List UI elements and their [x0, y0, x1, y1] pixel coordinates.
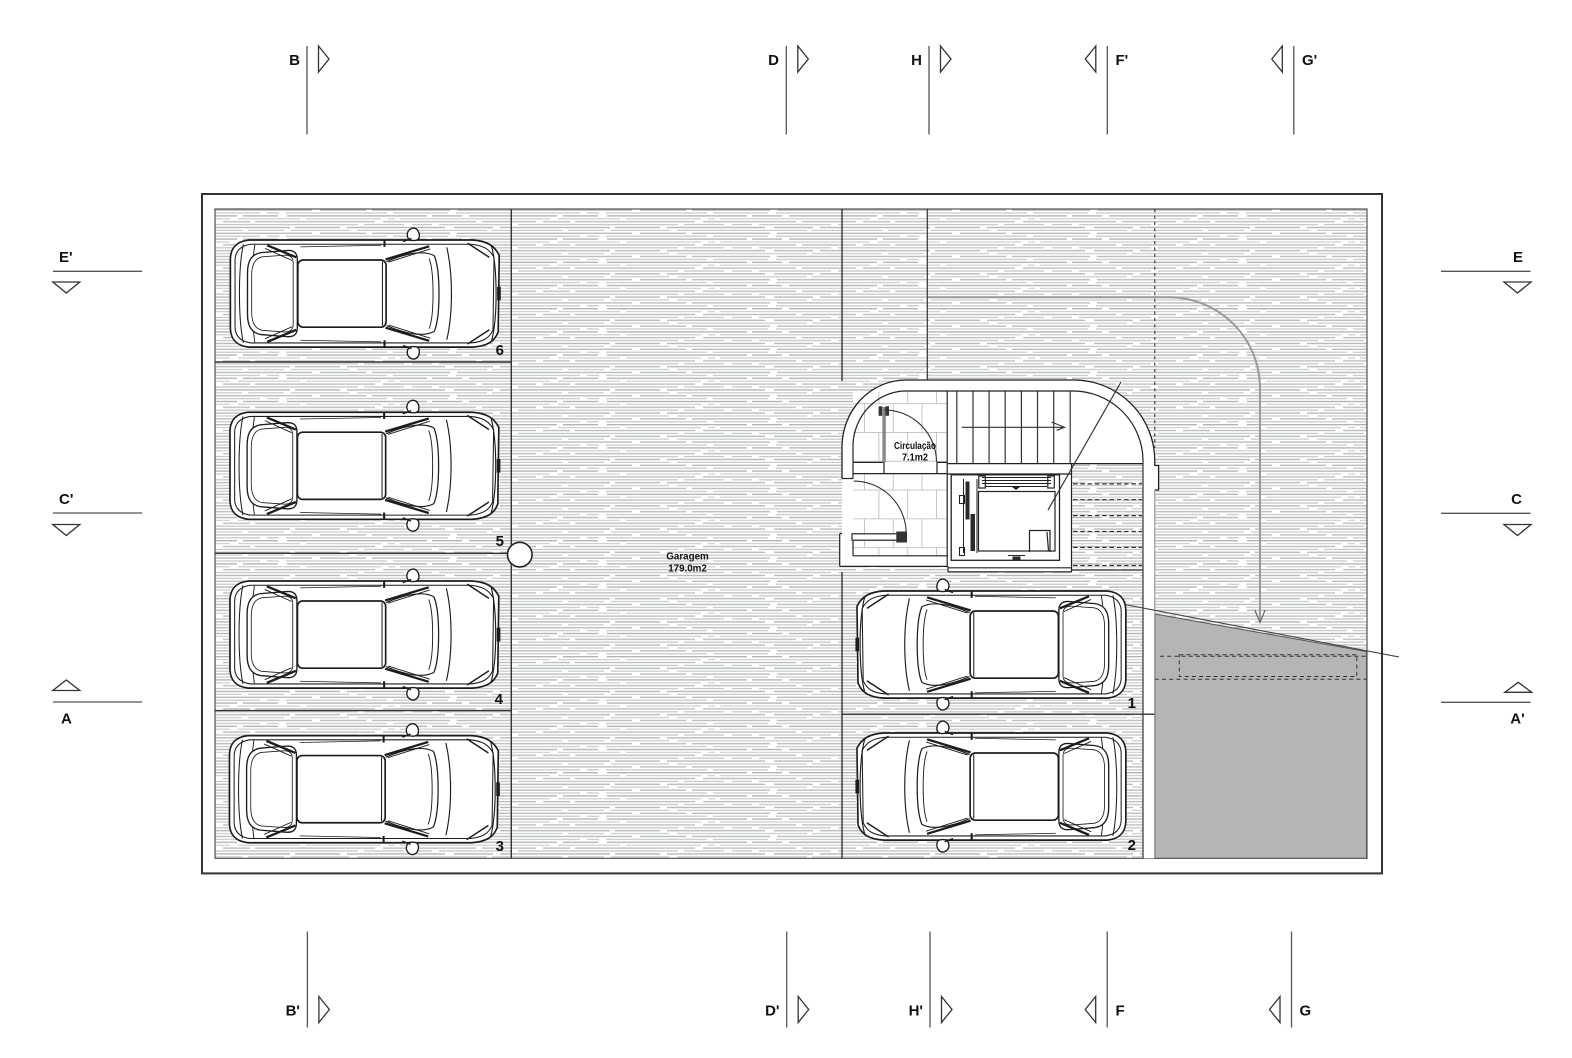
svg-text:E': E': [59, 249, 73, 266]
svg-text:6: 6: [496, 342, 504, 359]
svg-text:C': C': [59, 491, 73, 508]
svg-text:A: A: [61, 711, 72, 728]
svg-text:A': A': [1510, 711, 1524, 728]
svg-text:Garagem: Garagem: [666, 551, 709, 563]
svg-text:B': B': [286, 1003, 300, 1020]
svg-text:F: F: [1116, 1003, 1125, 1020]
svg-text:5: 5: [496, 533, 504, 550]
svg-text:179.0m2: 179.0m2: [668, 563, 707, 575]
svg-text:E: E: [1513, 249, 1523, 266]
svg-text:B: B: [289, 52, 300, 69]
svg-text:G: G: [1300, 1003, 1312, 1020]
svg-text:C: C: [1511, 491, 1522, 508]
svg-text:D': D': [765, 1003, 779, 1020]
svg-text:1: 1: [1128, 695, 1136, 712]
svg-text:7.1m2: 7.1m2: [902, 453, 928, 464]
svg-text:G': G': [1302, 52, 1317, 69]
svg-text:3: 3: [496, 838, 504, 855]
svg-text:4: 4: [495, 691, 504, 708]
svg-text:Circulação: Circulação: [894, 441, 936, 452]
svg-text:2: 2: [1128, 837, 1136, 854]
svg-text:H': H': [909, 1003, 923, 1020]
svg-text:D: D: [768, 52, 779, 69]
svg-text:F': F': [1116, 52, 1129, 69]
svg-text:H: H: [911, 52, 922, 69]
